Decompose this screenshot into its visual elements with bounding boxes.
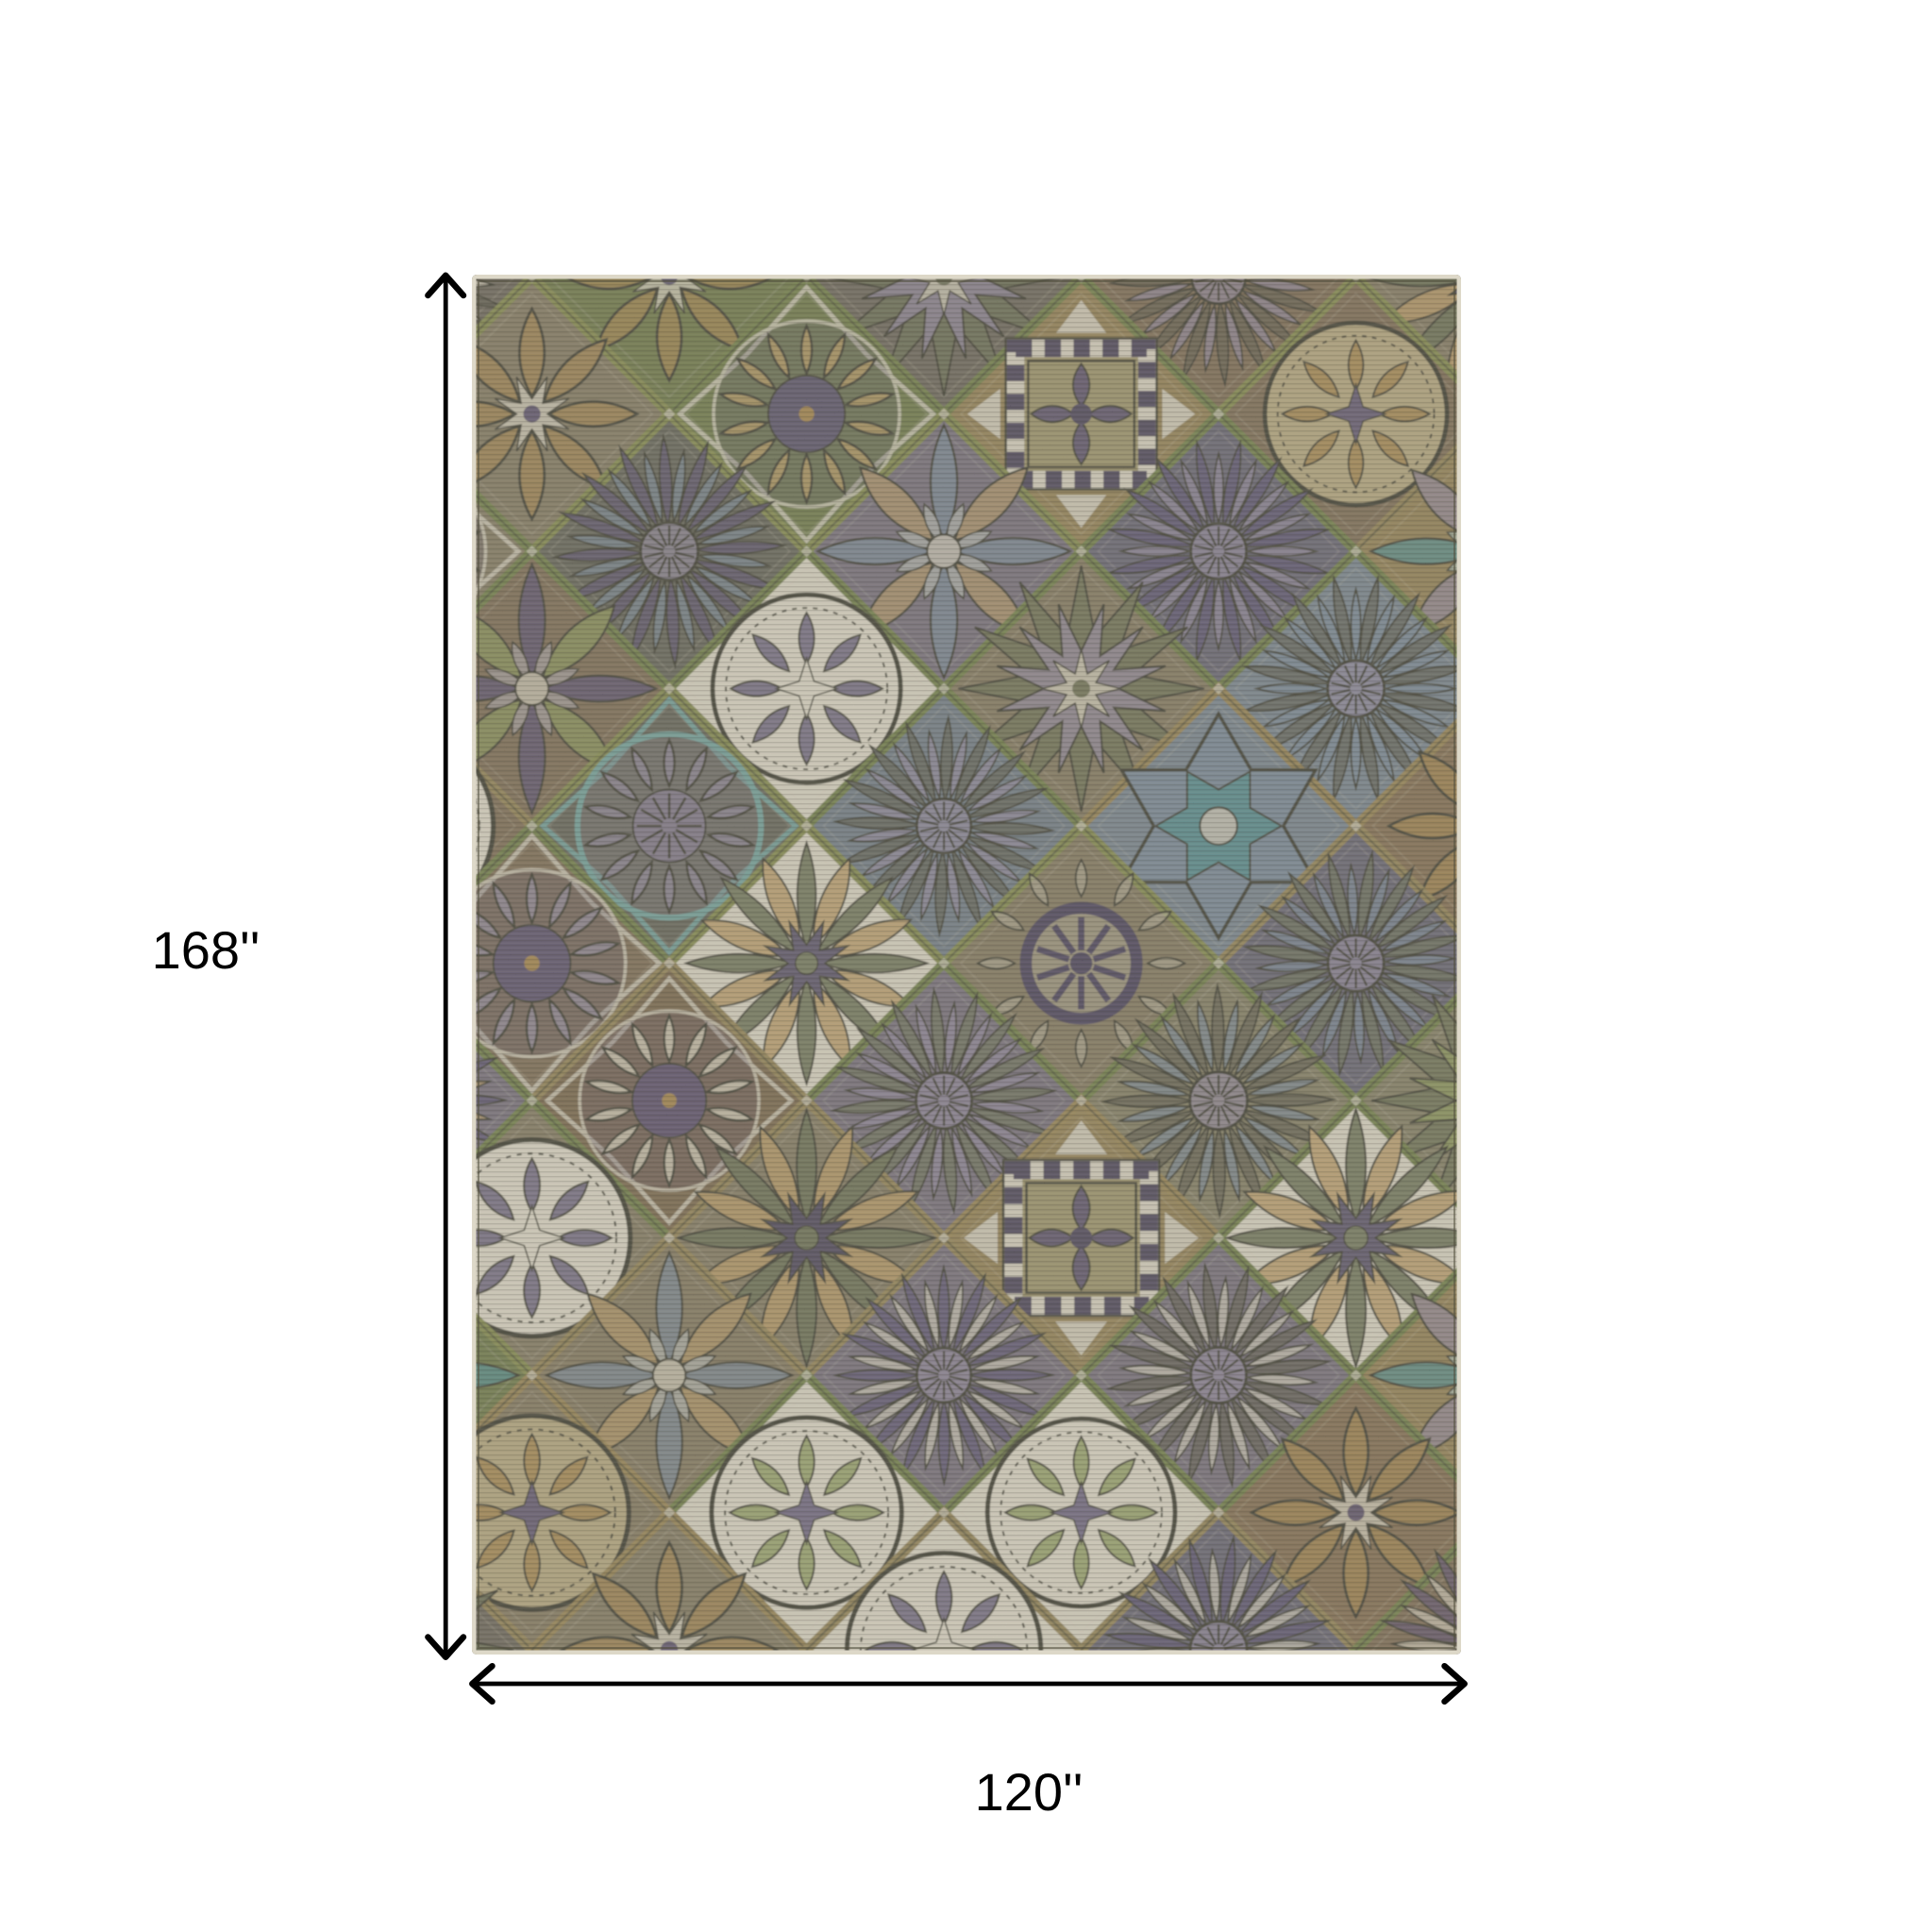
svg-text:120'': 120''	[975, 1762, 1084, 1822]
svg-text:168'': 168''	[152, 920, 260, 980]
